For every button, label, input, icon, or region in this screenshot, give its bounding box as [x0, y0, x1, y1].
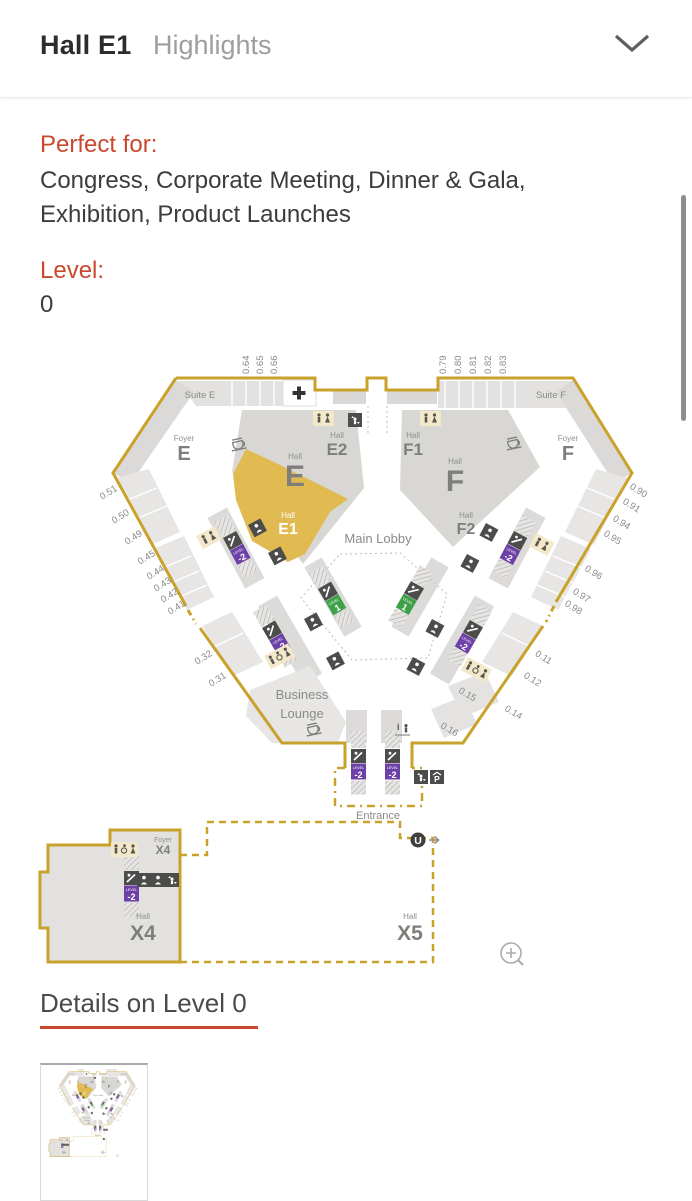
room-label: 0.96 — [583, 563, 605, 582]
hall-f-label: F — [446, 465, 464, 498]
floorplan-map[interactable]: LEVEL -2 LEVEL 1 — [0, 340, 692, 988]
room-label: 0.12 — [522, 670, 544, 689]
room-label: 0.14 — [502, 703, 524, 722]
main-lobby-label: Main Lobby — [344, 531, 412, 546]
hall-f1-small: Hall — [406, 431, 420, 440]
hall-detail-screen: Hall E1 Highlights Perfect for: Congress… — [0, 0, 692, 1201]
room-dividers — [127, 381, 617, 647]
hall-f2-small: Hall — [459, 511, 473, 520]
business-lounge-label2: Lounge — [280, 706, 323, 721]
room-label: 0.94 — [611, 513, 633, 532]
business-lounge-area — [246, 666, 346, 743]
foyer-x4-label: X4 — [156, 843, 171, 857]
room-label: 0.66 — [269, 356, 280, 375]
level-0-thumbnail[interactable] — [40, 1063, 148, 1201]
right-edge-band — [556, 380, 632, 483]
room-label: 0.80 — [453, 356, 464, 375]
room-label: 0.91 — [621, 496, 643, 515]
chevron-down-icon[interactable] — [612, 30, 652, 58]
room-label: 0.50 — [110, 507, 132, 526]
rooms-left-upper — [116, 469, 180, 545]
room-label: 0.65 — [255, 356, 266, 375]
room-label: 0.51 — [98, 483, 120, 502]
suite-f-label: Suite F — [536, 390, 566, 401]
hall-x5-small: Hall — [403, 912, 417, 921]
hall-x4-label: X4 — [130, 922, 156, 945]
details-heading: Details on Level 0 — [40, 988, 247, 1019]
header: Hall E1 Highlights — [0, 0, 692, 98]
room-label: 0.11 — [533, 649, 554, 668]
foyer-e-label: E — [177, 443, 190, 465]
page-title: Hall E1 — [40, 30, 131, 61]
perfect-for-label: Perfect for: — [40, 131, 157, 159]
left-edge-band — [113, 380, 194, 483]
room-label: 0.79 — [438, 356, 449, 375]
tab-highlights[interactable]: Highlights — [153, 30, 272, 61]
level-label: Level: — [40, 257, 104, 285]
hall-e1-label: E1 — [278, 521, 298, 538]
room-label: 0.31 — [207, 670, 229, 689]
room-label: 0.95 — [602, 528, 624, 547]
building-outline — [113, 378, 632, 962]
mini-map — [46, 1069, 142, 1161]
hall-f2-label: F2 — [457, 521, 476, 538]
corridor — [333, 390, 366, 404]
room-label: 0.81 — [468, 356, 479, 375]
room-label: 0.90 — [628, 481, 650, 500]
foyer-f-small: Foyer — [558, 434, 579, 443]
room-label: 0.49 — [123, 528, 145, 547]
foyer-e-small: Foyer — [174, 434, 195, 443]
hall-e2-small: Hall — [330, 431, 344, 440]
map-zoom-button[interactable] — [501, 943, 523, 965]
entrance-label: Entrance — [356, 810, 400, 822]
room-numbers-top: 0.64 0.65 0.66 0.79 0.80 0.81 0.82 0.83 — [241, 356, 509, 375]
business-lounge-label1: Business — [276, 687, 329, 702]
hall-e-label: E — [285, 460, 305, 493]
corridor — [387, 390, 437, 404]
room-label: 0.83 — [498, 356, 509, 375]
perfect-for-line2: Exhibition, Product Launches — [40, 198, 351, 232]
room-label: 0.64 — [241, 356, 252, 375]
room-label: 0.82 — [483, 356, 494, 375]
level-value: 0 — [40, 288, 53, 322]
hall-e2-label: E2 — [327, 440, 348, 459]
hall-x4-small: Hall — [136, 912, 150, 921]
suite-e-label: Suite E — [185, 390, 216, 401]
details-underline — [40, 1026, 258, 1029]
foyer-f-label: F — [562, 443, 574, 465]
hall-f1-label: F1 — [403, 440, 423, 459]
hall-e1-small: Hall — [281, 511, 295, 520]
hall-x5-label: X5 — [397, 922, 423, 945]
rooms-right-bottom — [482, 612, 543, 676]
room-label: 0.32 — [193, 648, 215, 667]
perfect-for-line1: Congress, Corporate Meeting, Dinner & Ga… — [40, 164, 526, 198]
